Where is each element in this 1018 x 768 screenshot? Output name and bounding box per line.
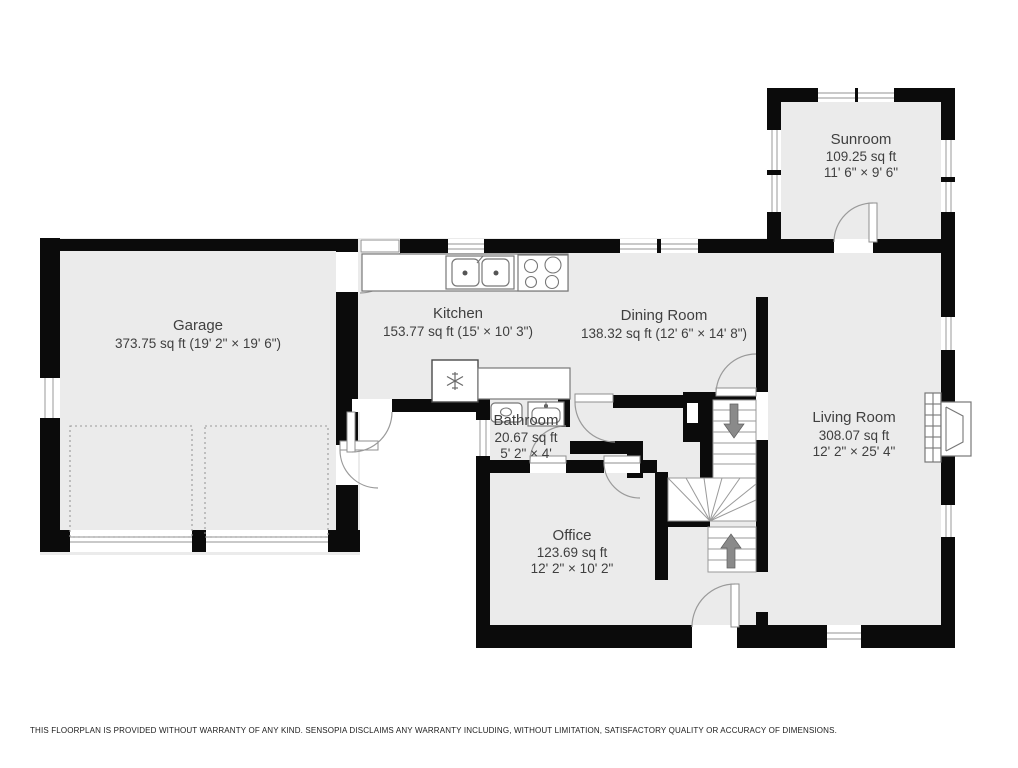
wall-office-left [476, 456, 490, 648]
wall-sunroom-right [941, 212, 955, 253]
double-sink-icon [446, 256, 514, 289]
wall-stub [756, 612, 768, 625]
wall-living-right [941, 350, 955, 402]
bathroom-label: Bathroom [493, 412, 558, 429]
wall-bottom [861, 625, 955, 648]
kitchen-window [448, 239, 484, 253]
bathroom-dims: 5' 2" × 4' [500, 446, 552, 461]
living-room-label: Living Room [812, 409, 895, 426]
living-room-dims: 12' 2" × 25' 4" [813, 444, 896, 459]
kitchen-label: Kitchen [433, 305, 483, 322]
main-floor [336, 238, 955, 648]
wall-stair-left-upper [700, 392, 713, 478]
floorplan-page: Garage 373.75 sq ft (19' 2" × 19' 6") Ki… [0, 0, 1018, 768]
wall-kitchen-south [336, 399, 352, 412]
wall-window-mullion [855, 88, 858, 102]
wall-sunroom-top [767, 88, 818, 102]
dining-room-dims: 138.32 sq ft (12' 6" × 14' 8") [581, 326, 747, 341]
wall-stair-left [655, 472, 668, 580]
wall-garage-right [336, 485, 358, 552]
office-label: Office [553, 527, 592, 544]
bathroom-window [476, 420, 490, 456]
garage-side-door [336, 441, 378, 488]
wall-living-right [941, 456, 955, 505]
living-bottom-window [827, 625, 861, 648]
garage-label: Garage [173, 317, 223, 334]
wall-top [698, 239, 767, 253]
wall-bottom [476, 625, 692, 648]
wall-garage-door-post [192, 530, 206, 552]
closet-niche [687, 403, 698, 423]
wall-window-mullion [657, 239, 661, 253]
garage-dims: 373.75 sq ft (19' 2" × 19' 6") [115, 336, 281, 351]
wall-office-top [476, 460, 530, 473]
wall-office-top [566, 460, 604, 473]
wall-window-mullion [941, 177, 955, 182]
fireplace-icon [925, 393, 971, 462]
wall-garage-bottom [40, 530, 70, 552]
wall-sunroom-south [873, 239, 941, 253]
sunroom-area: 109.25 sq ft [826, 149, 897, 164]
wall-dining-living-divider [756, 297, 768, 392]
floorplan-canvas: Garage 373.75 sq ft (19' 2" × 19' 6") Ki… [0, 0, 1018, 768]
bathroom-area: 20.67 sq ft [494, 430, 557, 445]
wall-garage-right [336, 239, 358, 252]
kitchen-counter-lower [478, 368, 570, 399]
wall-bottom [737, 625, 827, 648]
wall-living-right [941, 253, 955, 317]
wall-kitchen-top [400, 239, 448, 253]
wall-sunroom-right [941, 88, 955, 140]
wall-top [484, 239, 620, 253]
wall-window-mullion [767, 170, 781, 175]
office-area: 123.69 sq ft [537, 545, 608, 560]
wall-garage-top [40, 239, 340, 251]
wall-winder-divider [668, 521, 710, 527]
living-room-area: 308.07 sq ft [819, 428, 890, 443]
dining-room-label: Dining Room [621, 307, 708, 324]
wall-sunroom-left [767, 212, 781, 253]
stove-icon [518, 255, 568, 291]
garage-floor [40, 238, 360, 555]
sunroom-label: Sunroom [831, 131, 892, 148]
sunroom-dims: 11' 6" × 9' 6" [824, 165, 898, 180]
disclaimer-text: THIS FLOORPLAN IS PROVIDED WITHOUT WARRA… [30, 726, 837, 735]
office-dims: 12' 2" × 10' 2" [531, 561, 614, 576]
garage-left-window [40, 378, 60, 418]
snowflake-icon [432, 360, 478, 402]
wall-stair-right [756, 440, 768, 572]
kitchen-dims: 153.77 sq ft (15' × 10' 3") [383, 324, 533, 339]
wall-garage-left [40, 238, 60, 378]
sunroom-right-windows [941, 140, 955, 212]
